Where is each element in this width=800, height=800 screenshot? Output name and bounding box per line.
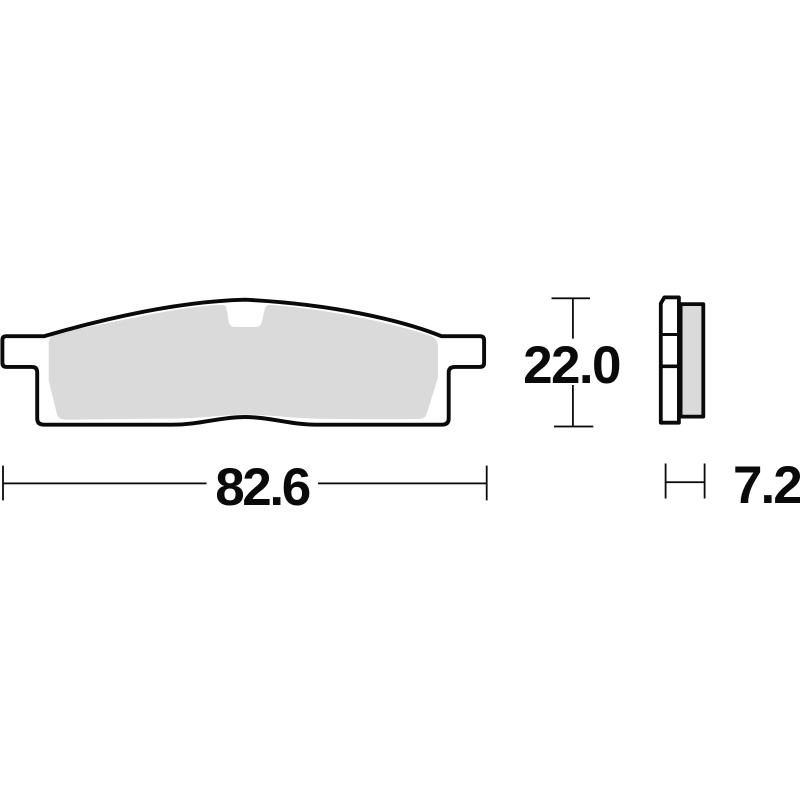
svg-text:82.6: 82.6: [215, 458, 309, 517]
svg-text:22.0: 22.0: [523, 336, 620, 395]
svg-text:7.2: 7.2: [733, 456, 800, 515]
